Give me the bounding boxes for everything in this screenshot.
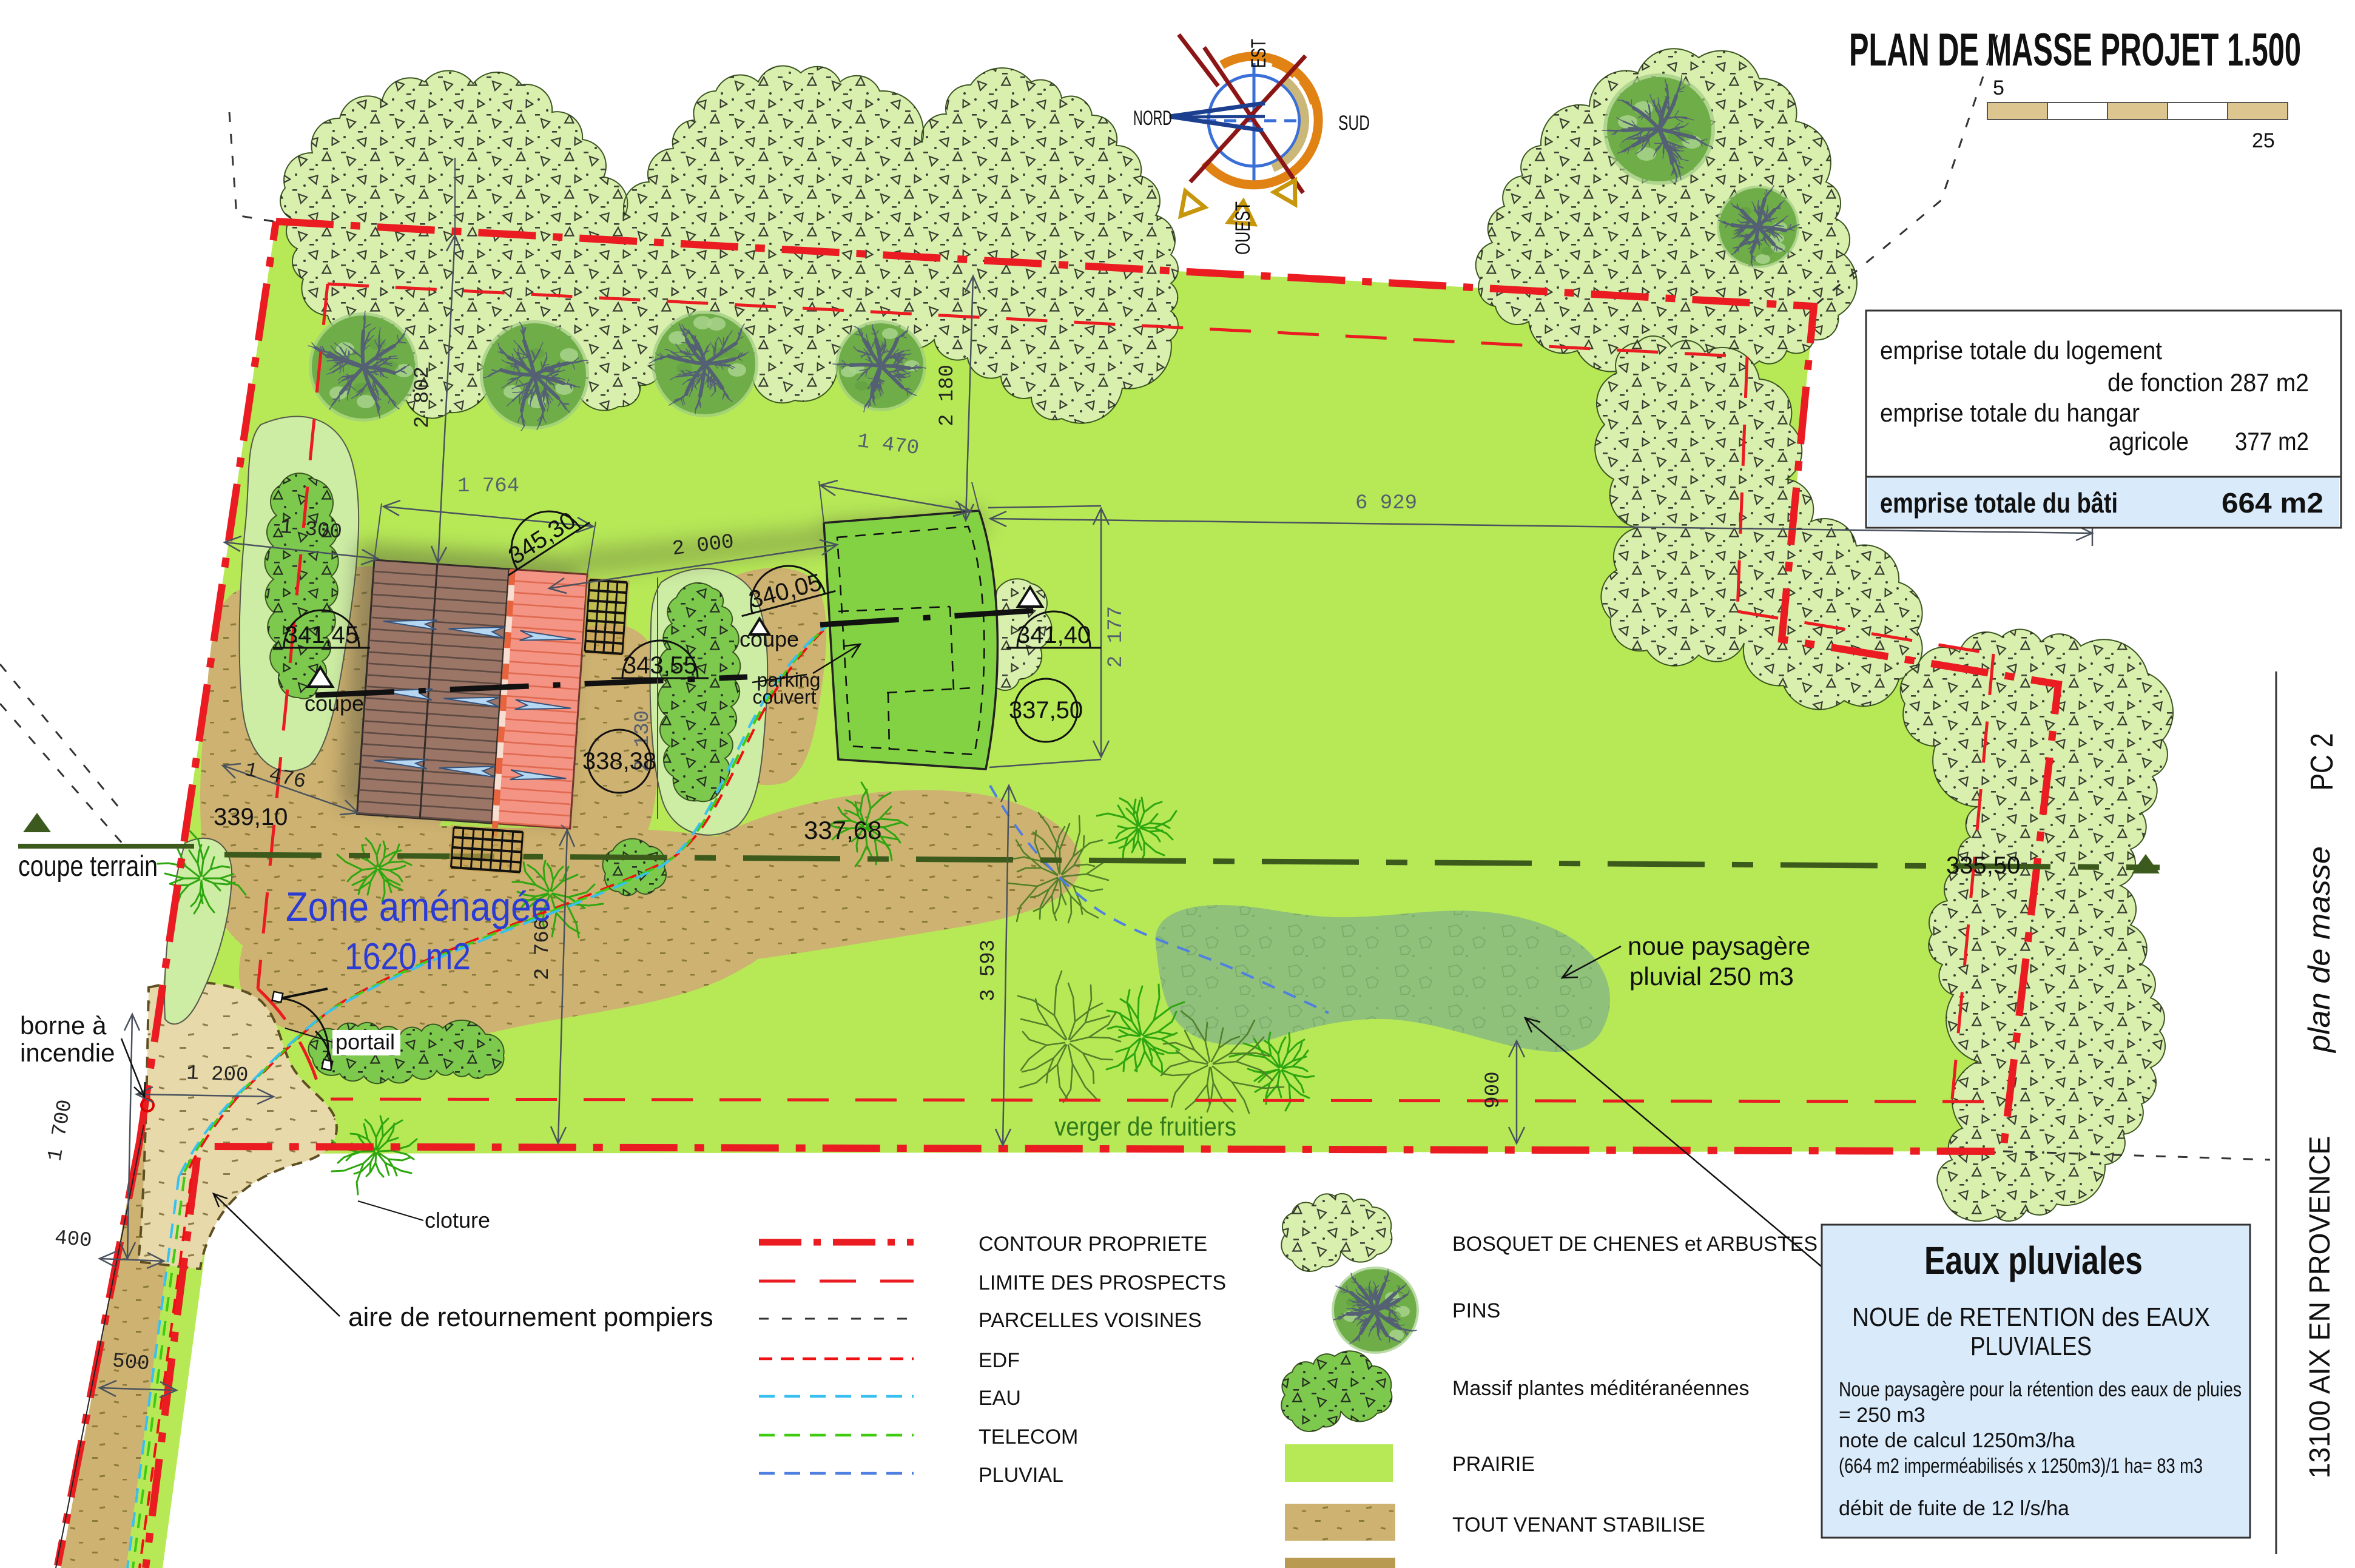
svg-text:337,50: 337,50 <box>1009 697 1083 724</box>
svg-text:6 929: 6 929 <box>1355 492 1417 515</box>
svg-text:PLUVIALES: PLUVIALES <box>1970 1331 2092 1361</box>
svg-text:TOUT VENANT STABILISE: TOUT VENANT STABILISE <box>1452 1513 1705 1536</box>
svg-text:coupe: coupe <box>740 627 799 651</box>
svg-text:EAU: EAU <box>979 1387 1021 1410</box>
svg-text:SUD: SUD <box>1338 112 1370 135</box>
svg-text:5: 5 <box>1993 76 2004 99</box>
svg-text:note de calcul 1250m3/ha: note de calcul 1250m3/ha <box>1839 1429 2075 1452</box>
svg-text:borne à: borne à <box>20 1011 107 1040</box>
svg-text:343,55: 343,55 <box>623 652 697 679</box>
svg-text:coupe: coupe <box>305 691 364 716</box>
svg-text:OUEST: OUEST <box>1231 201 1255 255</box>
svg-text:339,10: 339,10 <box>214 804 288 830</box>
svg-text:2 802: 2 802 <box>411 366 434 428</box>
svg-text:EDF: EDF <box>979 1349 1020 1372</box>
svg-text:cloture: cloture <box>425 1208 490 1233</box>
svg-text:plan de masse: plan de masse <box>2302 846 2336 1054</box>
svg-text:couvert: couvert <box>753 686 817 708</box>
svg-text:PINS: PINS <box>1452 1299 1500 1322</box>
svg-text:PLAN DE MASSE PROJET 1.500: PLAN DE MASSE PROJET 1.500 <box>1849 24 2301 76</box>
svg-text:EST: EST <box>1247 39 1270 68</box>
svg-text:de fonction 287 m2: de fonction 287 m2 <box>2107 368 2309 397</box>
svg-text:341,40: 341,40 <box>1017 622 1091 648</box>
svg-text:= 250 m3: = 250 m3 <box>1839 1404 1925 1427</box>
svg-text:Massif plantes méditéranéennes: Massif plantes méditéranéennes <box>1452 1377 1750 1400</box>
svg-text:coupe terrain: coupe terrain <box>18 850 158 883</box>
svg-text:400: 400 <box>54 1226 93 1253</box>
svg-text:verger de fruitiers: verger de fruitiers <box>1054 1112 1236 1142</box>
svg-text:PLUVIAL: PLUVIAL <box>979 1464 1063 1487</box>
svg-text:664 m2: 664 m2 <box>2222 487 2323 519</box>
svg-text:1 764: 1 764 <box>457 475 519 498</box>
svg-text:TELECOM: TELECOM <box>979 1425 1078 1449</box>
svg-text:débit de fuite de 12 l/s/ha: débit de fuite de 12 l/s/ha <box>1839 1497 2069 1520</box>
svg-text:341,45: 341,45 <box>285 622 359 648</box>
svg-text:1620 m2: 1620 m2 <box>345 936 471 978</box>
svg-text:Noue paysagère pour la rétenti: Noue paysagère pour la rétention des eau… <box>1839 1378 2242 1401</box>
svg-text:NORD: NORD <box>1133 107 1172 130</box>
svg-text:338,38: 338,38 <box>582 748 656 775</box>
svg-text:emprise totale du bâti: emprise totale du bâti <box>1880 487 2118 519</box>
svg-text:13100 AIX EN PROVENCE: 13100 AIX EN PROVENCE <box>2304 1136 2336 1479</box>
svg-text:PARCELLES VOISINES: PARCELLES VOISINES <box>979 1309 1202 1332</box>
svg-text:emprise totale du hangar: emprise totale du hangar <box>1880 399 2140 427</box>
svg-text:noue paysagère: noue paysagère <box>1628 932 1810 960</box>
svg-text:aire de retournement pompiers: aire de retournement pompiers <box>348 1302 713 1332</box>
svg-text:BOSQUET DE CHENES et ARBUSTES: BOSQUET DE CHENES et ARBUSTES <box>1452 1233 1818 1256</box>
svg-text:3 593: 3 593 <box>977 940 1000 1001</box>
svg-text:Zone aménagée: Zone aménagée <box>286 884 551 930</box>
svg-text:Eaux pluviales: Eaux pluviales <box>1924 1239 2143 1282</box>
svg-text:LIMITE DES PROSPECTS: LIMITE DES PROSPECTS <box>979 1271 1226 1294</box>
svg-text:337,68: 337,68 <box>804 816 881 844</box>
svg-text:500: 500 <box>112 1350 150 1376</box>
svg-text:PRAIRIE: PRAIRIE <box>1452 1453 1535 1476</box>
svg-text:1 200: 1 200 <box>186 1062 249 1088</box>
svg-text:incendie: incendie <box>20 1038 115 1067</box>
svg-text:25: 25 <box>2252 129 2275 152</box>
svg-text:900: 900 <box>1482 1071 1505 1108</box>
svg-text:agricole: agricole <box>2109 427 2189 456</box>
svg-text:335,50: 335,50 <box>1946 852 2020 879</box>
svg-text:(664 m2 imperméabilisés x 1250: (664 m2 imperméabilisés x 1250m3)/1 ha= … <box>1839 1455 2203 1478</box>
svg-text:377 m2: 377 m2 <box>2235 427 2309 456</box>
svg-text:NOUE de RETENTION des EAUX: NOUE de RETENTION des EAUX <box>1852 1302 2210 1332</box>
svg-text:PC 2: PC 2 <box>2305 733 2340 791</box>
svg-text:emprise totale du logement: emprise totale du logement <box>1880 336 2162 365</box>
svg-text:2 180: 2 180 <box>936 365 959 426</box>
svg-text:pluvial 250 m3: pluvial 250 m3 <box>1629 962 1794 991</box>
svg-text:2 177: 2 177 <box>1105 606 1128 668</box>
svg-text:portail: portail <box>335 1029 395 1054</box>
svg-text:CONTOUR PROPRIETE: CONTOUR PROPRIETE <box>979 1233 1207 1256</box>
